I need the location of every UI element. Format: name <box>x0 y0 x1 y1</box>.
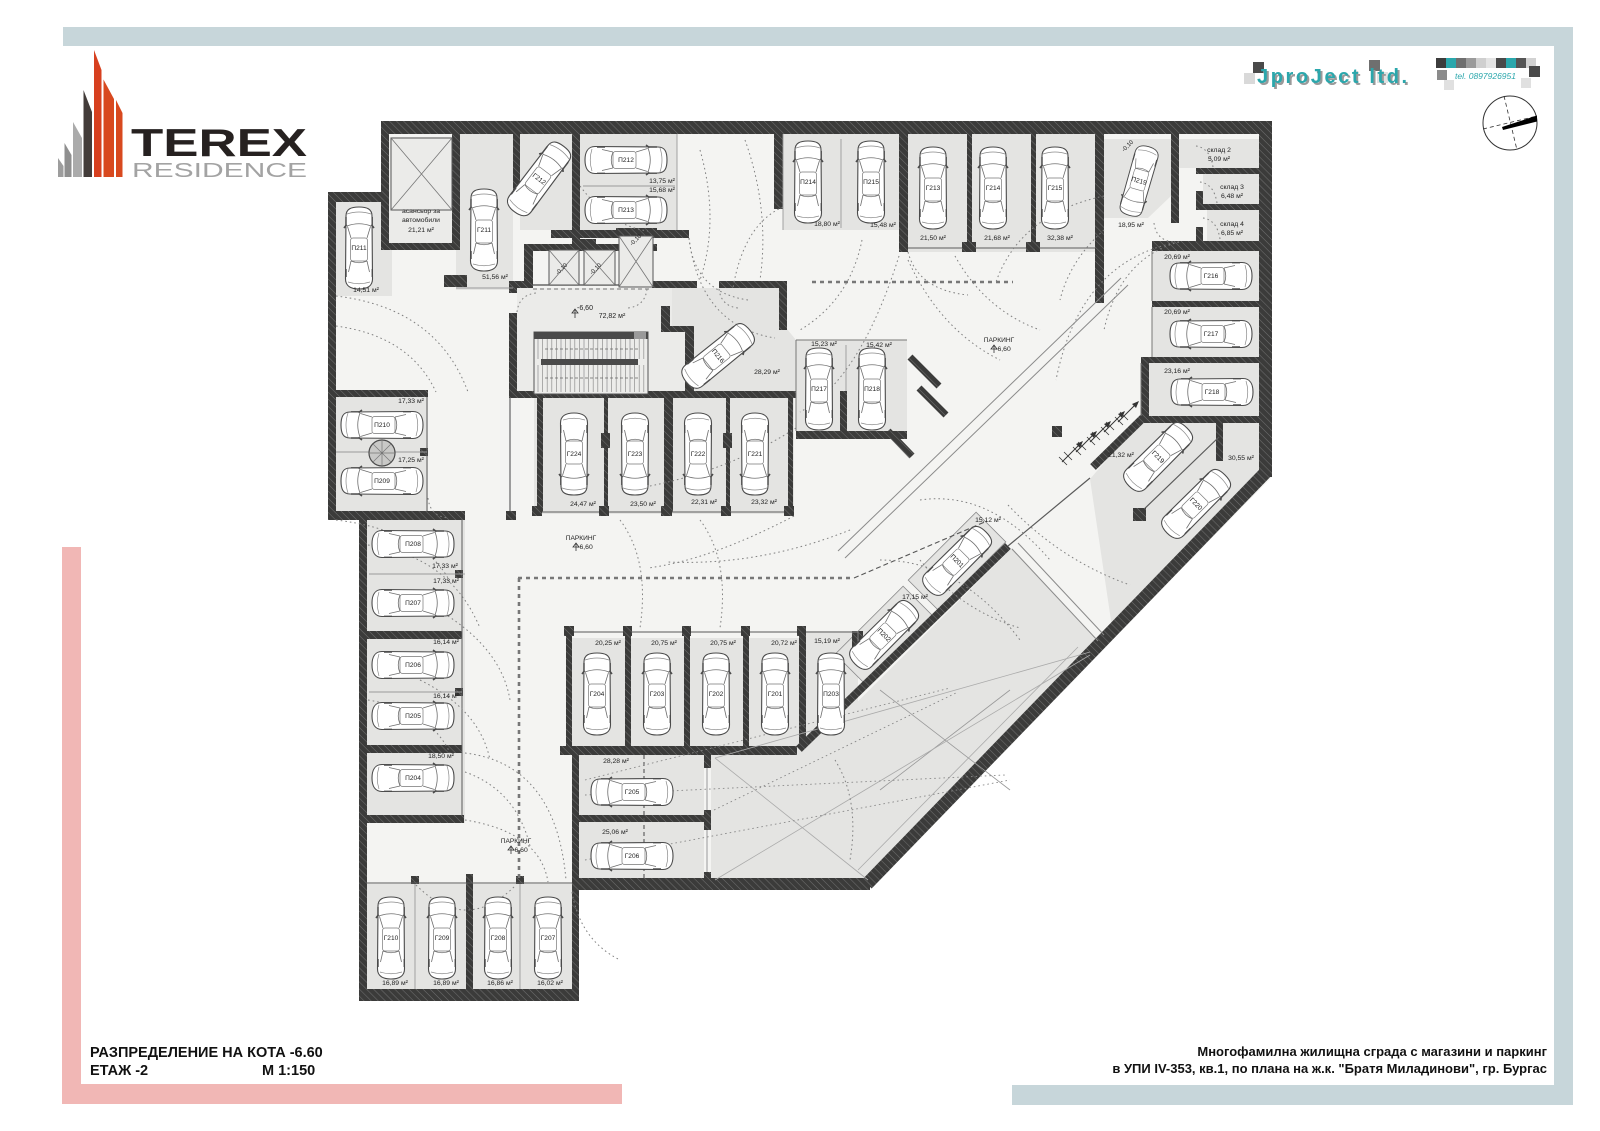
svg-text:17,33 м²: 17,33 м² <box>433 578 460 585</box>
svg-text:15,23 м²: 15,23 м² <box>811 341 838 348</box>
svg-text:ПАРКИНГ: ПАРКИНГ <box>501 838 532 845</box>
svg-text:20,75 м²: 20,75 м² <box>651 640 678 647</box>
svg-text:51,56 м²: 51,56 м² <box>482 274 509 281</box>
svg-text:Г217: Г217 <box>1204 331 1219 338</box>
svg-text:-6,60: -6,60 <box>995 346 1011 353</box>
svg-text:Г205: Г205 <box>625 789 640 796</box>
svg-text:П217: П217 <box>811 386 827 393</box>
svg-text:Г206: Г206 <box>625 853 640 860</box>
svg-text:21,21 м²: 21,21 м² <box>408 227 435 234</box>
svg-text:20,25 м²: 20,25 м² <box>595 640 622 647</box>
svg-text:21,32 м²: 21,32 м² <box>1108 452 1135 459</box>
svg-text:Г216: Г216 <box>1204 273 1219 280</box>
svg-text:Г223: Г223 <box>628 451 643 458</box>
svg-text:Многофамилна жилищна сграда с: Многофамилна жилищна сграда с магазини и… <box>1197 1044 1547 1059</box>
svg-text:П205: П205 <box>405 713 421 720</box>
svg-text:6,48 м²: 6,48 м² <box>1221 193 1244 200</box>
svg-text:Г218: Г218 <box>1205 389 1220 396</box>
svg-text:15,42 м²: 15,42 м² <box>866 342 893 349</box>
svg-text:склад 2: склад 2 <box>1207 147 1231 154</box>
svg-text:Г209: Г209 <box>435 935 450 942</box>
svg-text:14,51 м²: 14,51 м² <box>353 287 380 294</box>
svg-text:П212: П212 <box>618 157 634 164</box>
svg-text:автомобили: автомобили <box>402 216 440 224</box>
svg-text:Г221: Г221 <box>748 451 763 458</box>
svg-text:13,75 м²: 13,75 м² <box>649 178 676 185</box>
svg-text:склад 4: склад 4 <box>1220 221 1244 228</box>
svg-text:П214: П214 <box>800 179 816 186</box>
svg-text:П204: П204 <box>405 775 421 782</box>
svg-text:ПАРКИНГ: ПАРКИНГ <box>984 337 1015 344</box>
svg-text:в УПИ IV-353, кв.1, по плана н: в УПИ IV-353, кв.1, по плана на ж.к. "Бр… <box>1112 1061 1547 1076</box>
svg-text:РАЗПРЕДЕЛЕНИЕ НА КОТА -6.60: РАЗПРЕДЕЛЕНИЕ НА КОТА -6.60 <box>90 1045 323 1061</box>
svg-text:5,09 м²: 5,09 м² <box>1208 156 1231 163</box>
svg-text:П218: П218 <box>864 386 880 393</box>
svg-text:П207: П207 <box>405 600 421 607</box>
svg-text:Г222: Г222 <box>691 451 706 458</box>
svg-text:16,02 м²: 16,02 м² <box>537 980 564 987</box>
svg-text:П209: П209 <box>374 478 390 485</box>
svg-text:21,68 м²: 21,68 м² <box>984 235 1011 242</box>
svg-text:tel. 0897926951: tel. 0897926951 <box>1455 71 1516 81</box>
svg-text:16,89 м²: 16,89 м² <box>382 980 409 987</box>
svg-text:16,89 м²: 16,89 м² <box>433 980 460 987</box>
svg-text:23,50 м²: 23,50 м² <box>630 501 657 508</box>
svg-text:17,33 м²: 17,33 м² <box>398 398 425 405</box>
svg-text:25,06 м²: 25,06 м² <box>602 829 629 836</box>
svg-text:JproJect ltd.: JproJect ltd. <box>1257 66 1410 88</box>
svg-text:20,69 м²: 20,69 м² <box>1164 254 1191 261</box>
svg-text:15,12 м²: 15,12 м² <box>975 517 1002 524</box>
svg-text:18,50 м²: 18,50 м² <box>428 753 455 760</box>
svg-text:72,82 м²: 72,82 м² <box>599 313 626 320</box>
svg-text:32,38 м²: 32,38 м² <box>1047 235 1074 242</box>
svg-text:28,29 м²: 28,29 м² <box>754 369 781 376</box>
svg-text:ЕТАЖ -2: ЕТАЖ -2 <box>90 1063 148 1079</box>
svg-text:Г201: Г201 <box>768 691 783 698</box>
svg-text:TEREX: TEREX <box>131 122 307 165</box>
svg-text:16,14 м²: 16,14 м² <box>433 693 460 700</box>
svg-text:Г203: Г203 <box>650 691 665 698</box>
svg-text:30,55 м²: 30,55 м² <box>1228 455 1255 462</box>
svg-text:28,28 м²: 28,28 м² <box>603 758 630 765</box>
svg-text:15,68 м²: 15,68 м² <box>649 187 676 194</box>
svg-text:20,72 м²: 20,72 м² <box>771 640 798 647</box>
svg-text:17,33 м²: 17,33 м² <box>432 563 459 570</box>
svg-text:асансьор за: асансьор за <box>402 208 440 215</box>
svg-text:18,80 м²: 18,80 м² <box>814 221 841 228</box>
svg-text:Г208: Г208 <box>491 935 506 942</box>
svg-text:24,47 м²: 24,47 м² <box>570 501 597 508</box>
svg-text:15,48 м²: 15,48 м² <box>870 222 897 229</box>
svg-text:6,85 м²: 6,85 м² <box>1221 230 1244 237</box>
svg-text:Г213: Г213 <box>926 185 941 192</box>
svg-text:17,15 м²: 17,15 м² <box>902 594 929 601</box>
svg-text:-6,60: -6,60 <box>512 847 528 854</box>
svg-text:15,19 м²: 15,19 м² <box>814 638 841 645</box>
svg-text:-6,60: -6,60 <box>577 544 593 551</box>
svg-text:П211: П211 <box>351 245 367 252</box>
svg-text:RESIDENCE: RESIDENCE <box>132 160 307 182</box>
svg-text:Г224: Г224 <box>567 451 582 458</box>
svg-text:Г207: Г207 <box>541 935 556 942</box>
svg-text:23,16 м²: 23,16 м² <box>1164 368 1191 375</box>
svg-text:Г204: Г204 <box>590 691 605 698</box>
svg-text:М 1:150: М 1:150 <box>262 1063 315 1079</box>
svg-text:Г210: Г210 <box>384 935 399 942</box>
svg-text:П206: П206 <box>405 662 421 669</box>
svg-text:П203: П203 <box>823 691 839 698</box>
svg-text:18,95 м²: 18,95 м² <box>1118 222 1145 229</box>
svg-text:Г214: Г214 <box>986 185 1001 192</box>
svg-text:П213: П213 <box>618 207 634 214</box>
svg-text:22,31 м²: 22,31 м² <box>691 499 718 506</box>
svg-text:17,25 м²: 17,25 м² <box>398 457 425 464</box>
svg-text:23,32 м²: 23,32 м² <box>751 499 778 506</box>
svg-text:16,86 м²: 16,86 м² <box>487 980 514 987</box>
svg-text:20,69 м²: 20,69 м² <box>1164 309 1191 316</box>
svg-text:16,14 м²: 16,14 м² <box>433 639 460 646</box>
svg-text:Г202: Г202 <box>709 691 724 698</box>
svg-text:ПАРКИНГ: ПАРКИНГ <box>566 535 597 542</box>
svg-text:21,50 м²: 21,50 м² <box>920 235 947 242</box>
svg-text:Г211: Г211 <box>477 227 491 234</box>
svg-text:П210: П210 <box>374 422 390 429</box>
svg-text:20,75 м²: 20,75 м² <box>710 640 737 647</box>
svg-text:Г215: Г215 <box>1048 185 1063 192</box>
svg-text:П208: П208 <box>405 541 421 548</box>
svg-text:П215: П215 <box>863 179 879 186</box>
svg-text:склад 3: склад 3 <box>1220 184 1244 191</box>
svg-text:-6,60: -6,60 <box>577 305 593 312</box>
